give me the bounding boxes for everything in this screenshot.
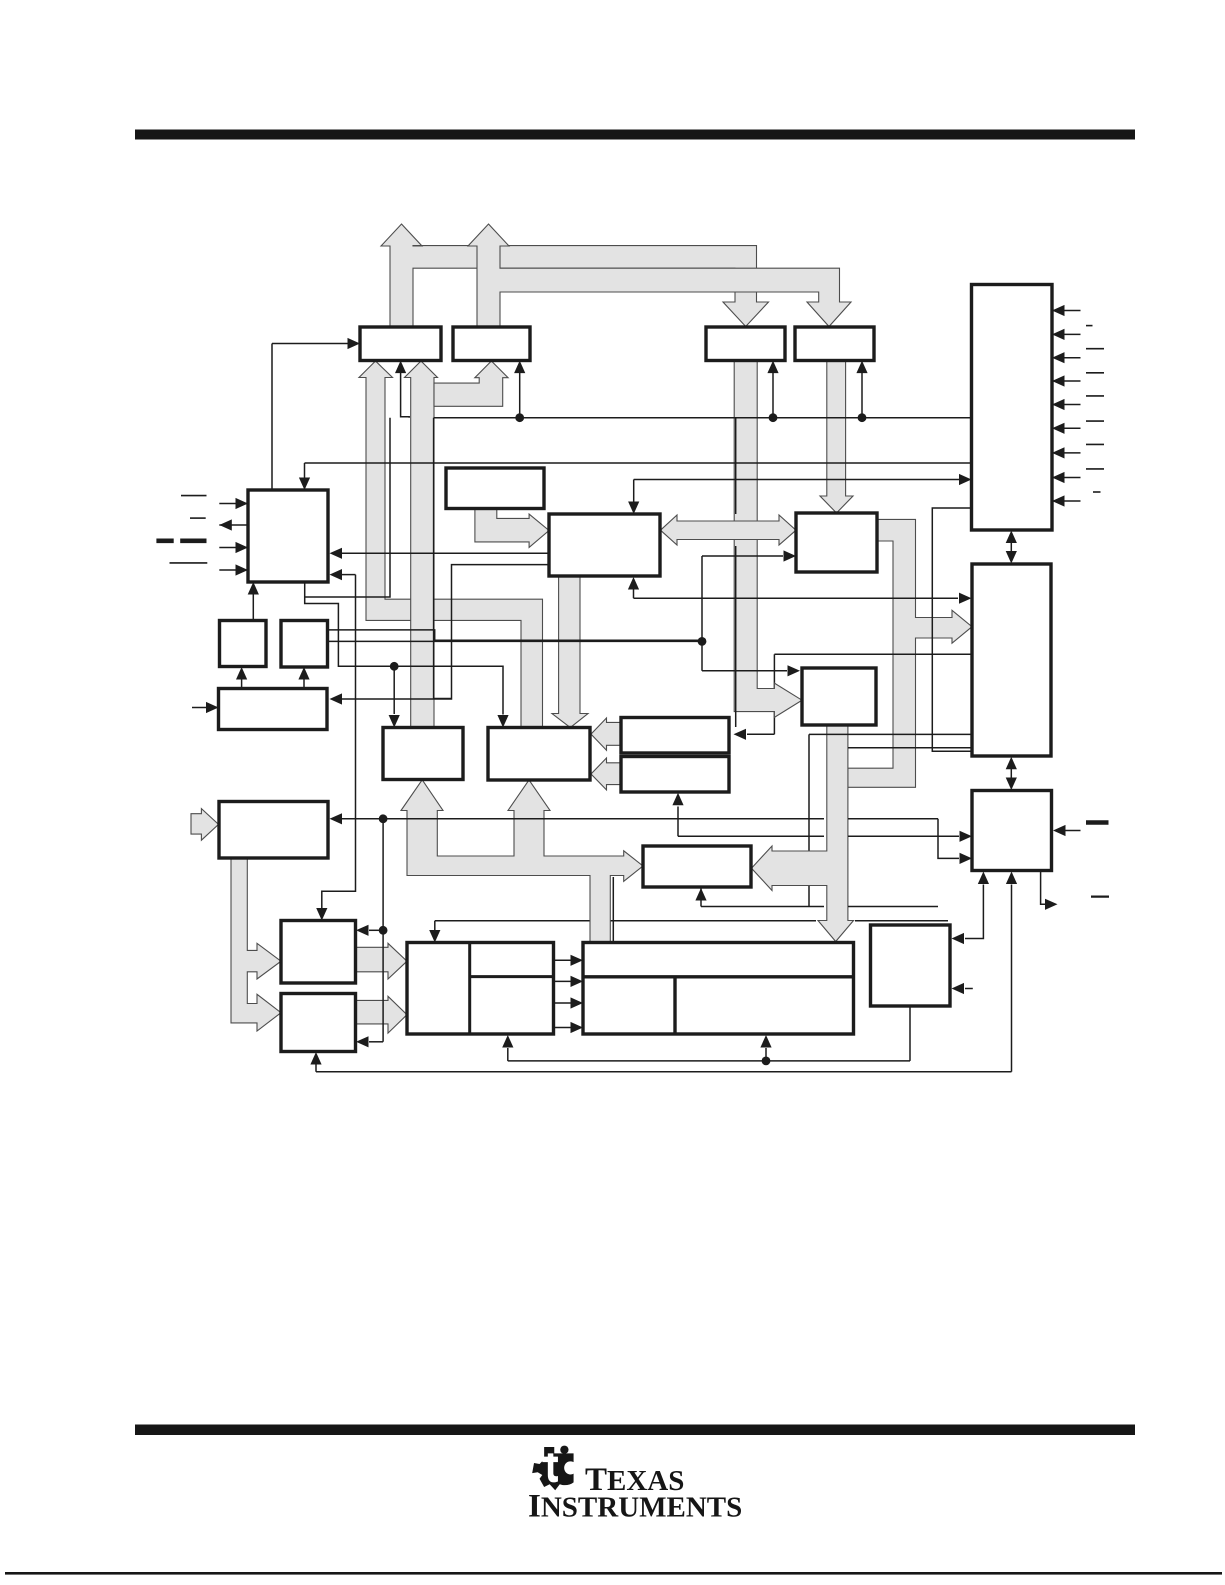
svg-text:INSTRUMENTS: INSTRUMENTS — [528, 1489, 742, 1525]
